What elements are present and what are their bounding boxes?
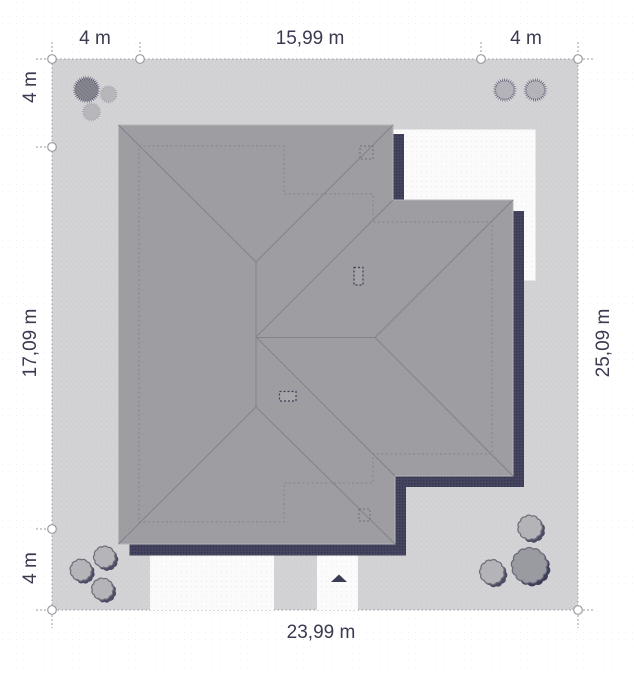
svg-text:4 m: 4 m: [79, 28, 111, 49]
svg-text:4 m: 4 m: [20, 552, 41, 584]
svg-text:23,99 m: 23,99 m: [287, 622, 356, 643]
svg-text:15,99 m: 15,99 m: [276, 28, 345, 49]
svg-text:17,09 m: 17,09 m: [20, 309, 41, 378]
svg-text:25,09 m: 25,09 m: [593, 309, 614, 378]
svg-text:4 m: 4 m: [510, 28, 542, 49]
svg-text:4 m: 4 m: [20, 71, 41, 103]
